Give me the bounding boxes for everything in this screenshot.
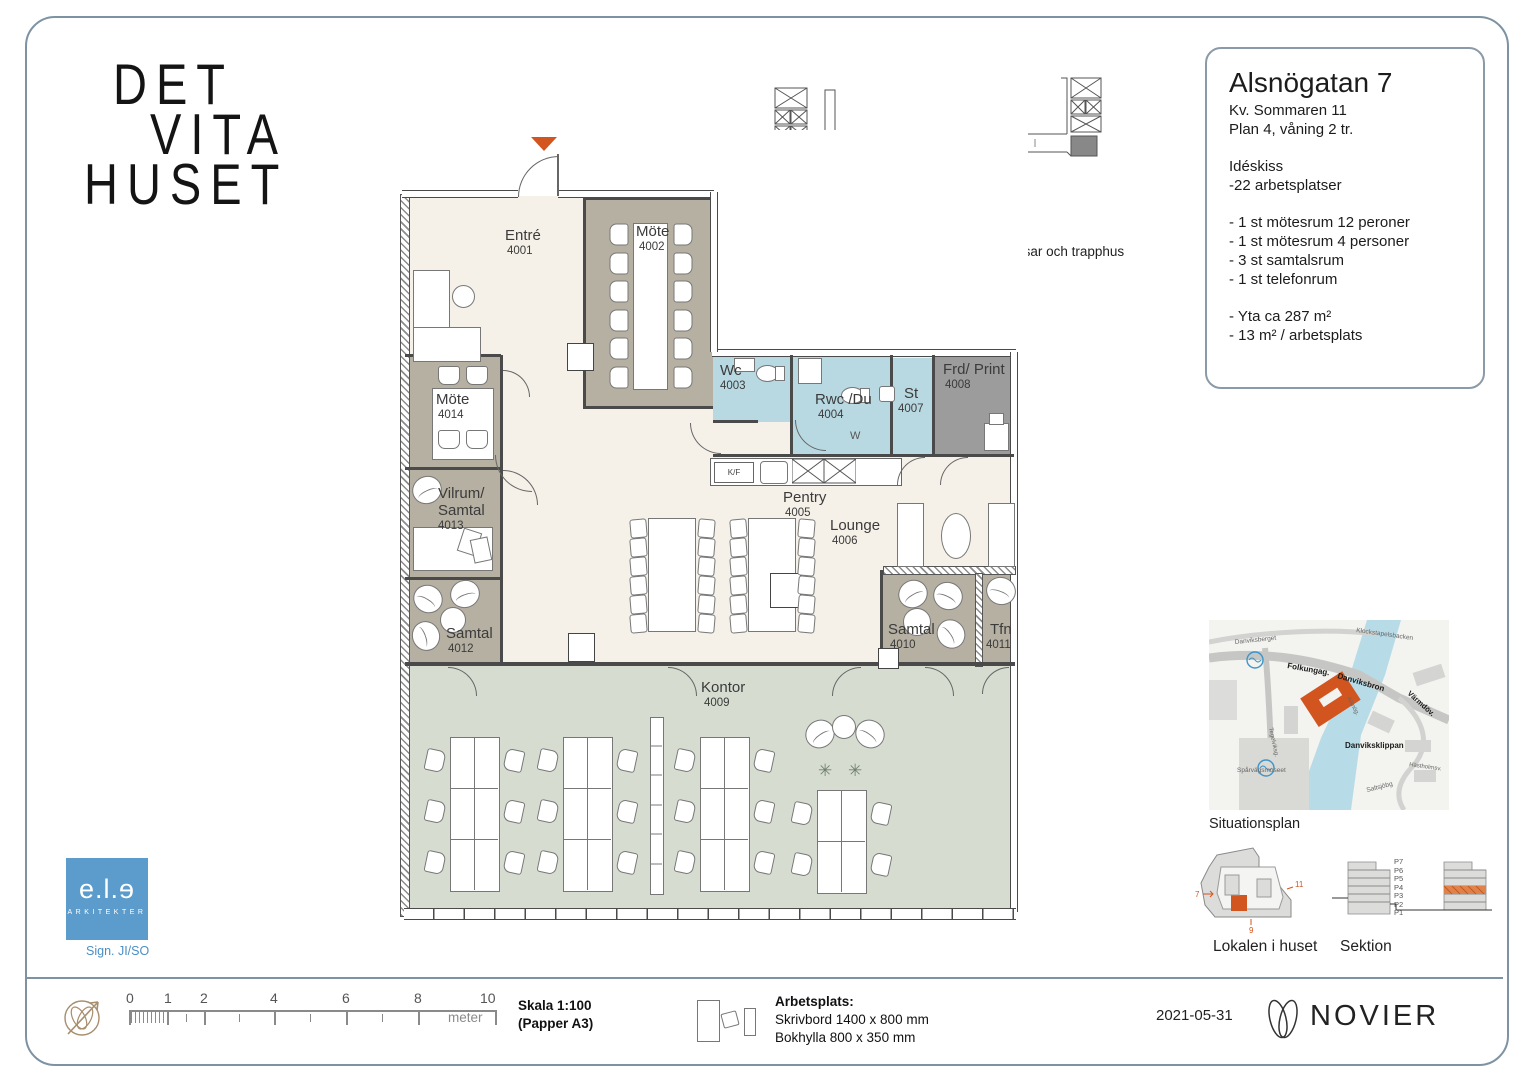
meeting-chair <box>674 366 693 388</box>
lounge-sofa <box>897 503 924 567</box>
meeting-chair <box>674 338 693 360</box>
plant-icon: ✳ <box>818 762 832 779</box>
pentry-chair <box>629 575 648 595</box>
footer-divider <box>27 977 1503 979</box>
section-floor-labels: P7P6 P5P4 P3P2 P1 <box>1394 858 1403 917</box>
meeting-chair <box>610 281 629 303</box>
scale-unit: meter <box>448 1010 483 1025</box>
program-item-1: - 1 st mötesrum 12 peroner <box>1229 213 1469 232</box>
pentry-chair <box>629 594 648 614</box>
pentry-chair <box>697 575 716 595</box>
label-mote-4014: Möte <box>436 392 469 408</box>
pentry-chair <box>697 594 716 614</box>
wall-west <box>400 194 410 917</box>
label-wc: Wc <box>720 363 742 379</box>
wall-partition <box>932 355 935 457</box>
label-kontor: Kontor <box>701 680 745 696</box>
meeting-chair <box>610 366 629 388</box>
building-locator: 7 11 9 <box>1195 845 1310 935</box>
label-mote-4002: Möte <box>636 224 669 240</box>
plant-icon: ✳ <box>848 762 862 779</box>
floor-plan: W K/F <box>400 130 1028 928</box>
shelf-symbol <box>744 1008 756 1036</box>
printer-symbol <box>984 423 1009 451</box>
pentry-chair <box>697 518 716 538</box>
pentry-chair <box>797 518 816 538</box>
pentry-chair <box>729 594 748 614</box>
label-lounge: Lounge <box>830 518 880 534</box>
pentry-chair <box>629 537 648 557</box>
signature: Sign. JI/SO <box>86 944 149 958</box>
program-item-3: - 3 st samtalsrum <box>1229 251 1469 270</box>
project-title: Alsnögatan 7 <box>1229 67 1469 99</box>
svg-text:Spårvägsmuseet: Spårvägsmuseet <box>1237 766 1286 774</box>
label-entre: Entré <box>505 228 541 244</box>
locator-marker-11: 11 <box>1295 880 1304 889</box>
area-per-workplace: - 13 m² / arbetsplats <box>1229 326 1469 345</box>
ele-arkitekter-logo: e.l.ɘ ARKITEKTER <box>66 858 148 940</box>
pentry-chair <box>629 556 648 576</box>
wall-small-rooms <box>500 355 503 665</box>
pentry-chair <box>629 518 648 538</box>
project-block: Kv. Sommaren 11 <box>1229 101 1469 120</box>
pentry-chair <box>629 613 648 633</box>
sektion-caption: Sektion <box>1340 938 1392 956</box>
project-info-box: Alsnögatan 7 Kv. Sommaren 11 Plan 4, vån… <box>1205 47 1485 389</box>
pentry-chair <box>797 556 816 576</box>
pentry-chair <box>697 556 716 576</box>
workplace-title: Arbetsplats: <box>775 994 854 1009</box>
locator-marker-7: 7 <box>1195 890 1200 899</box>
pentry-chair <box>697 537 716 557</box>
scale-text: Skala 1:100 <box>518 998 592 1013</box>
desk-divider <box>817 790 865 892</box>
program-item-2: - 1 st mötesrum 4 personer <box>1229 232 1469 251</box>
situation-map: Klockstapelsbacken Danviksberget Folkung… <box>1209 620 1449 810</box>
locator-marker-9: 9 <box>1249 926 1254 935</box>
desk-divider <box>700 737 748 890</box>
area-total: - Yta ca 287 m² <box>1229 307 1469 326</box>
lounge-table <box>941 513 971 559</box>
pentry-chair <box>797 594 816 614</box>
section-diagram <box>1332 852 1492 932</box>
pentry-chair <box>729 575 748 595</box>
svg-text:Danviksklippan: Danviksklippan <box>1345 741 1404 750</box>
situationsplan-caption: Situationsplan <box>1209 816 1300 832</box>
wall-mote-east <box>710 192 718 352</box>
logo-line-3: HUSET <box>84 155 288 212</box>
pentry-chair <box>729 537 748 557</box>
meeting-chair <box>610 338 629 360</box>
desk-symbol <box>697 1000 720 1042</box>
meeting-chair <box>674 309 693 331</box>
workplace-desk: Skrivbord 1400 x 800 mm <box>775 1012 929 1027</box>
desk-divider <box>450 737 498 890</box>
det-vita-huset-logo: DET VITA HUSET <box>84 55 344 225</box>
workplace-shelf: Bokhylla 800 x 350 mm <box>775 1030 915 1045</box>
label-vilrum: Vilrum/ <box>438 486 484 502</box>
wall-partition <box>405 577 501 580</box>
wall-north-1 <box>402 190 518 198</box>
sketch-label: Idéskiss <box>1229 157 1469 176</box>
label-frd: Frd/ Print <box>943 362 1005 378</box>
pentry-chair <box>797 613 816 633</box>
label-tfn: Tfn <box>990 622 1012 638</box>
novier-logo-icon <box>1263 996 1303 1042</box>
pentry-chair <box>697 613 716 633</box>
pentry-table <box>648 518 696 632</box>
outside-area <box>714 130 1028 354</box>
label-samtal-4010: Samtal <box>888 622 935 638</box>
kitchen-sink <box>760 461 788 484</box>
entry-door-swing <box>518 156 559 197</box>
novier-brand: NOVIER <box>1310 1000 1439 1033</box>
entre-stool <box>452 285 475 308</box>
wall-partition <box>790 355 793 455</box>
label-pentry: Pentry <box>783 490 826 506</box>
wall-kontor-north <box>405 662 1015 666</box>
wall-partition <box>713 454 893 457</box>
wall-north-2 <box>558 190 714 198</box>
floor-drain-icon: W <box>850 430 860 442</box>
meeting-chair <box>610 309 629 331</box>
locator-site <box>1231 895 1247 911</box>
wall-north-east-wing <box>712 349 1016 357</box>
pentry-chair <box>729 518 748 538</box>
drawing-date: 2021-05-31 <box>1156 1007 1233 1024</box>
meeting-chair <box>610 252 629 274</box>
wall-samtal-north <box>883 566 1016 575</box>
pentry-chair <box>729 556 748 576</box>
project-floor: Plan 4, våning 2 tr. <box>1229 120 1469 139</box>
pentry-chair <box>797 575 816 595</box>
paper-text: (Papper A3) <box>518 1016 593 1031</box>
desk-divider <box>563 737 611 890</box>
label-rwc: Rwc /Du <box>815 392 872 408</box>
wall-partition <box>890 355 893 456</box>
meeting-chair <box>674 252 693 274</box>
locator-caption: Lokalen i huset <box>1213 938 1317 956</box>
wall-tfn-west <box>975 573 983 667</box>
entre-cabinet <box>413 270 450 329</box>
meeting-chair <box>610 224 629 246</box>
entrance-arrow-icon <box>531 137 557 151</box>
north-compass-icon <box>58 992 114 1040</box>
label-samtal-4012: Samtal <box>446 626 493 642</box>
program-item-4: - 1 st telefonrum <box>1229 270 1469 289</box>
dishwasher-symbols <box>792 459 856 484</box>
entre-cabinet <box>413 327 481 362</box>
drawing-sheet: DET VITA HUSET Alsnögatan 7 Kv. Sommaren… <box>0 0 1528 1080</box>
lounge-sofa <box>988 503 1015 567</box>
label-st: St <box>904 386 918 402</box>
pentry-chair <box>797 537 816 557</box>
wall-partition <box>893 454 1014 457</box>
pentry-chair <box>729 613 748 633</box>
fridge-freezer: K/F <box>714 462 754 483</box>
meeting-chair <box>674 281 693 303</box>
workplace-count: -22 arbetsplatser <box>1229 176 1469 195</box>
meeting-chair <box>674 224 693 246</box>
wall-partition <box>405 467 501 470</box>
wall-south-windows <box>404 908 1016 920</box>
